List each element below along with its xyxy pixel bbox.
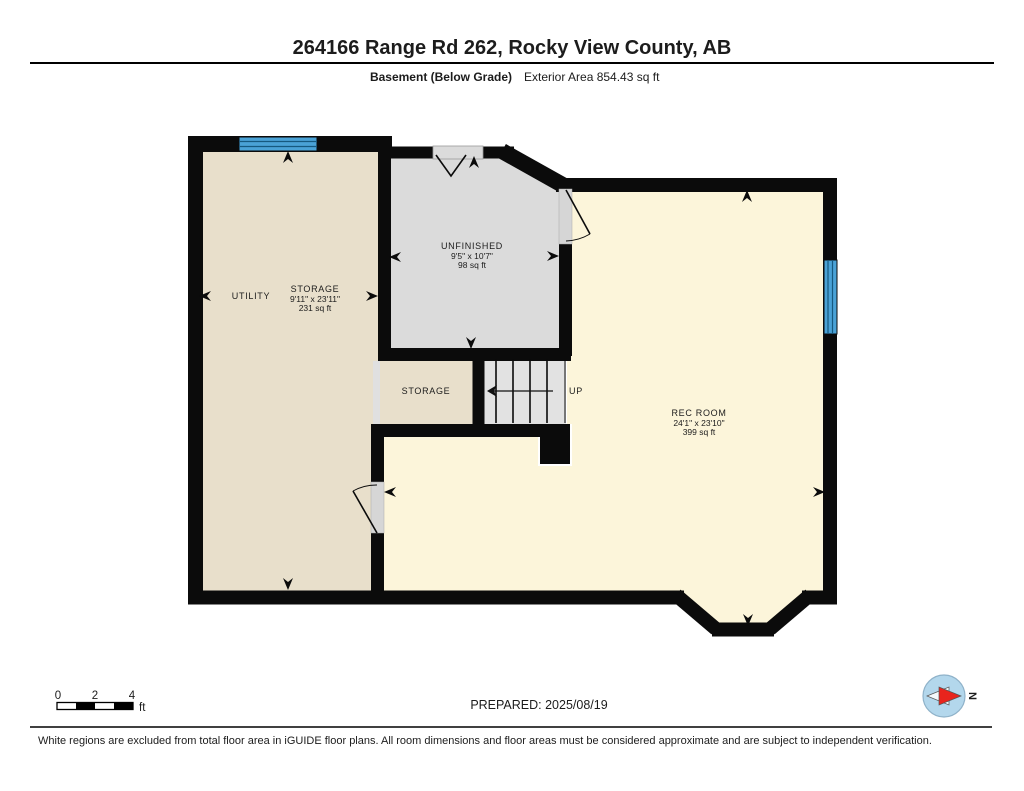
compass-icon: N — [923, 675, 978, 717]
utility-room-label: UTILITY — [232, 291, 270, 301]
scale-tick-0: 0 — [55, 690, 61, 702]
floor-label: Basement (Below Grade) — [370, 70, 512, 84]
page-title: 264166 Range Rd 262, Rocky View County, … — [293, 37, 732, 59]
scale-unit-label: ft — [139, 702, 146, 714]
window-right-icon — [824, 260, 837, 334]
scale-tick-2: 2 — [92, 690, 98, 702]
unfinished-room-label: UNFINISHED — [441, 241, 503, 251]
disclaimer-text: White regions are excluded from total fl… — [38, 735, 932, 747]
rec-room-area: 399 sq ft — [683, 427, 716, 437]
storage-room-label: STORAGE — [291, 284, 340, 294]
opening-utility-storage — [373, 361, 380, 424]
north-label: N — [966, 692, 978, 700]
floor-plan-image: 264166 Range Rd 262, Rocky View County, … — [0, 0, 1024, 791]
stairs-up-label: UP — [569, 386, 583, 396]
storage-small-room-label: STORAGE — [402, 386, 451, 396]
unfinished-room-area: 98 sq ft — [458, 260, 487, 270]
floor-plan-page: 264166 Range Rd 262, Rocky View County, … — [0, 0, 1024, 791]
wall-block-below-stairs — [540, 424, 570, 464]
rec-room-label: REC ROOM — [671, 408, 726, 418]
window-top-icon — [239, 137, 317, 151]
scale-tick-4: 4 — [129, 690, 136, 702]
scale-bar: 0 2 4 ft — [55, 690, 146, 714]
room-utility-storage — [196, 144, 380, 597]
storage-room-area: 231 sq ft — [299, 303, 332, 313]
prepared-date-label: PREPARED: 2025/08/19 — [470, 698, 607, 712]
exterior-area-label: Exterior Area 854.43 sq ft — [524, 70, 660, 84]
